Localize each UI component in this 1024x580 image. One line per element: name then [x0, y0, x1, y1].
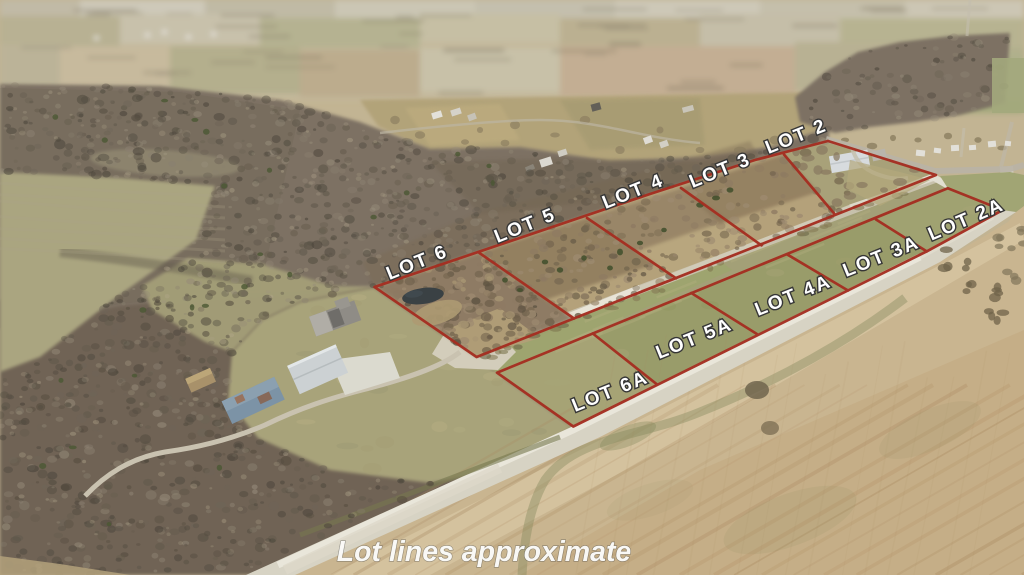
svg-text:Lot lines approximate: Lot lines approximate — [337, 536, 632, 568]
